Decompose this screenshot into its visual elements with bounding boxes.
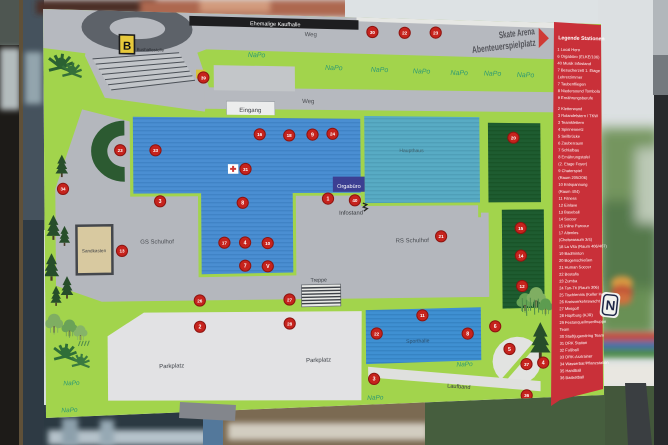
svg-text:NaPo: NaPo — [63, 380, 80, 388]
svg-text:N: N — [605, 298, 616, 314]
svg-text:2: 2 — [199, 325, 202, 331]
svg-text:2 Kletterwand: 2 Kletterwand — [558, 106, 583, 111]
svg-text:28 Hüpfburg (KJR): 28 Hüpfburg (KJR) — [559, 312, 593, 318]
svg-text:4 Spinnennetz: 4 Spinnennetz — [558, 127, 584, 132]
svg-text:40 Musik Infostand: 40 Musik Infostand — [557, 61, 591, 67]
svg-text:33: 33 — [153, 148, 159, 153]
svg-text:6 Orgabüro (ELKE/106): 6 Orgabüro (ELKE/106) — [557, 54, 600, 60]
svg-text:7: 7 — [244, 264, 247, 270]
svg-text:Haupthaus: Haupthaus — [399, 148, 424, 154]
svg-text:4: 4 — [542, 360, 545, 366]
svg-text:4: 4 — [244, 240, 247, 246]
svg-text:24 Tan-Tit (Raum 306): 24 Tan-Tit (Raum 306) — [559, 285, 600, 291]
svg-text:23 Zumba: 23 Zumba — [559, 278, 578, 283]
svg-text:17 Altenles: 17 Altenles — [559, 230, 579, 235]
svg-text:32 Fußball: 32 Fußball — [560, 347, 579, 353]
svg-text:Lehrerzimmer: Lehrerzimmer — [558, 74, 583, 79]
svg-text:23: 23 — [118, 148, 124, 153]
svg-text:8: 8 — [241, 201, 244, 207]
svg-text:NaPo: NaPo — [413, 68, 431, 75]
svg-text:Sandkasten: Sandkasten — [82, 248, 107, 253]
svg-text:24: 24 — [330, 132, 336, 137]
svg-text:8: 8 — [466, 331, 469, 337]
svg-text:1 Local Hero: 1 Local Hero — [557, 47, 581, 53]
svg-text:Orgabüro: Orgabüro — [337, 184, 361, 190]
svg-text:9 Ernährungsberufe: 9 Ernährungsberufe — [558, 95, 594, 100]
svg-text:30: 30 — [370, 30, 376, 35]
svg-text:12 Einlave: 12 Einlave — [559, 203, 578, 208]
svg-text:Parkplatz: Parkplatz — [159, 363, 184, 370]
svg-text:22: 22 — [402, 31, 408, 36]
svg-text:3: 3 — [159, 199, 162, 205]
svg-text:Infostand: Infostand — [339, 211, 363, 217]
svg-text:9 Chaterspiel: 9 Chaterspiel — [558, 168, 582, 173]
svg-text:31 DRK Station: 31 DRK Station — [560, 340, 588, 346]
svg-text:Treppe: Treppe — [311, 277, 327, 283]
svg-text:1: 1 — [327, 196, 330, 202]
svg-text:Parkplatz: Parkplatz — [306, 357, 331, 364]
svg-text:9: 9 — [311, 132, 314, 138]
svg-text:36 Basketball: 36 Basketball — [560, 374, 584, 380]
svg-text:8 Niedersound Tombola: 8 Niedersound Tombola — [558, 88, 601, 94]
svg-text:Bushaltestelle: Bushaltestelle — [137, 47, 165, 53]
svg-text:39: 39 — [201, 75, 207, 80]
svg-text:28: 28 — [287, 321, 293, 326]
svg-text:8 Ernährungstafel: 8 Ernährungstafel — [558, 154, 590, 159]
svg-text:NaPo: NaPo — [61, 407, 78, 415]
svg-text:V: V — [266, 264, 270, 270]
svg-text:NaPo: NaPo — [484, 71, 502, 78]
svg-text:NaPo: NaPo — [371, 67, 389, 74]
svg-text:(2. Etage Foyer): (2. Etage Foyer) — [558, 161, 588, 166]
svg-text:Weg: Weg — [302, 99, 314, 105]
svg-text:3 Rolandelstern / TKW: 3 Rolandelstern / TKW — [558, 113, 598, 118]
svg-text:RS Schulhof: RS Schulhof — [396, 238, 430, 244]
svg-text:5: 5 — [508, 347, 511, 353]
svg-text:20: 20 — [511, 136, 517, 141]
svg-text:17: 17 — [222, 241, 228, 246]
svg-text:10: 10 — [265, 241, 271, 246]
svg-text:Ehemalige Kaufhalle: Ehemalige Kaufhalle — [250, 21, 301, 28]
svg-text:B: B — [123, 41, 132, 53]
svg-text:15: 15 — [518, 226, 524, 231]
svg-text:5 Seilbrücke: 5 Seilbrücke — [558, 134, 581, 139]
svg-text:NaPo: NaPo — [367, 394, 384, 402]
svg-text:21 Human Soccer: 21 Human Soccer — [559, 264, 592, 270]
svg-text:Team: Team — [559, 327, 570, 332]
svg-text:15 Inline Parcour: 15 Inline Parcour — [559, 223, 590, 228]
svg-text:22: 22 — [374, 331, 380, 336]
svg-text:35 Handball: 35 Handball — [560, 368, 582, 374]
svg-text:31: 31 — [243, 167, 249, 172]
svg-text:NaPo: NaPo — [456, 361, 473, 369]
svg-text:Legende Stationen: Legende Stationen — [558, 35, 605, 42]
svg-text:23: 23 — [433, 30, 439, 35]
svg-text:20 Bogenschießen: 20 Bogenschießen — [559, 257, 592, 263]
svg-text:18: 18 — [287, 133, 293, 138]
svg-text:NaPo: NaPo — [325, 65, 343, 72]
svg-text:7 Schlafbau: 7 Schlafbau — [558, 147, 579, 152]
svg-text:19 Badminton: 19 Badminton — [559, 251, 584, 256]
svg-text:16: 16 — [257, 132, 263, 137]
svg-text:26 Kreisverkehrswacht: 26 Kreisverkehrswacht — [559, 298, 600, 304]
svg-text:27 Minigolf: 27 Minigolf — [559, 306, 579, 312]
svg-text:14: 14 — [518, 253, 524, 258]
svg-text:34: 34 — [60, 187, 66, 192]
svg-text:14 Soccer: 14 Soccer — [559, 216, 578, 221]
svg-text:(Chelsearaum 3/4): (Chelsearaum 3/4) — [559, 237, 593, 242]
svg-text:3 Teamklettern: 3 Teamklettern — [558, 120, 584, 125]
svg-text:NaPo: NaPo — [450, 70, 468, 77]
svg-text:11: 11 — [420, 313, 425, 318]
svg-text:37: 37 — [524, 362, 530, 367]
svg-text:22 Bestafis: 22 Bestafis — [559, 271, 579, 276]
svg-text:10 Entspannung: 10 Entspannung — [558, 182, 587, 187]
svg-text:21: 21 — [439, 234, 445, 239]
svg-text:40: 40 — [352, 198, 358, 203]
svg-text:(Raum 205/206): (Raum 205/206) — [558, 175, 588, 180]
svg-text:GS Schulhof: GS Schulhof — [140, 239, 174, 245]
svg-text:Weg: Weg — [305, 32, 317, 38]
svg-text:3: 3 — [373, 377, 376, 383]
svg-text:NaPo: NaPo — [517, 72, 535, 79]
svg-text:(Raum 404): (Raum 404) — [558, 189, 580, 194]
svg-text:Eingang: Eingang — [239, 108, 261, 114]
svg-text:7 Besucherzelt 1. Etage: 7 Besucherzelt 1. Etage — [557, 67, 600, 73]
svg-text:6 Zauberraum: 6 Zauberraum — [558, 141, 584, 146]
svg-text:7 Taubenfliegen: 7 Taubenfliegen — [558, 81, 586, 86]
svg-text:6: 6 — [494, 324, 497, 330]
svg-text:13: 13 — [119, 249, 125, 254]
svg-text:26: 26 — [197, 298, 203, 303]
svg-text:NaPo: NaPo — [248, 52, 266, 59]
svg-text:Sporthalle: Sporthalle — [406, 338, 430, 345]
svg-text:13 Baseball: 13 Baseball — [559, 209, 580, 214]
svg-text:18 La Vita (Raum 406/407): 18 La Vita (Raum 406/407) — [559, 243, 608, 249]
svg-text:12: 12 — [520, 284, 526, 289]
svg-text:36: 36 — [524, 393, 530, 398]
svg-text:11 Fitness: 11 Fitness — [558, 196, 576, 201]
svg-text:27: 27 — [287, 297, 293, 302]
